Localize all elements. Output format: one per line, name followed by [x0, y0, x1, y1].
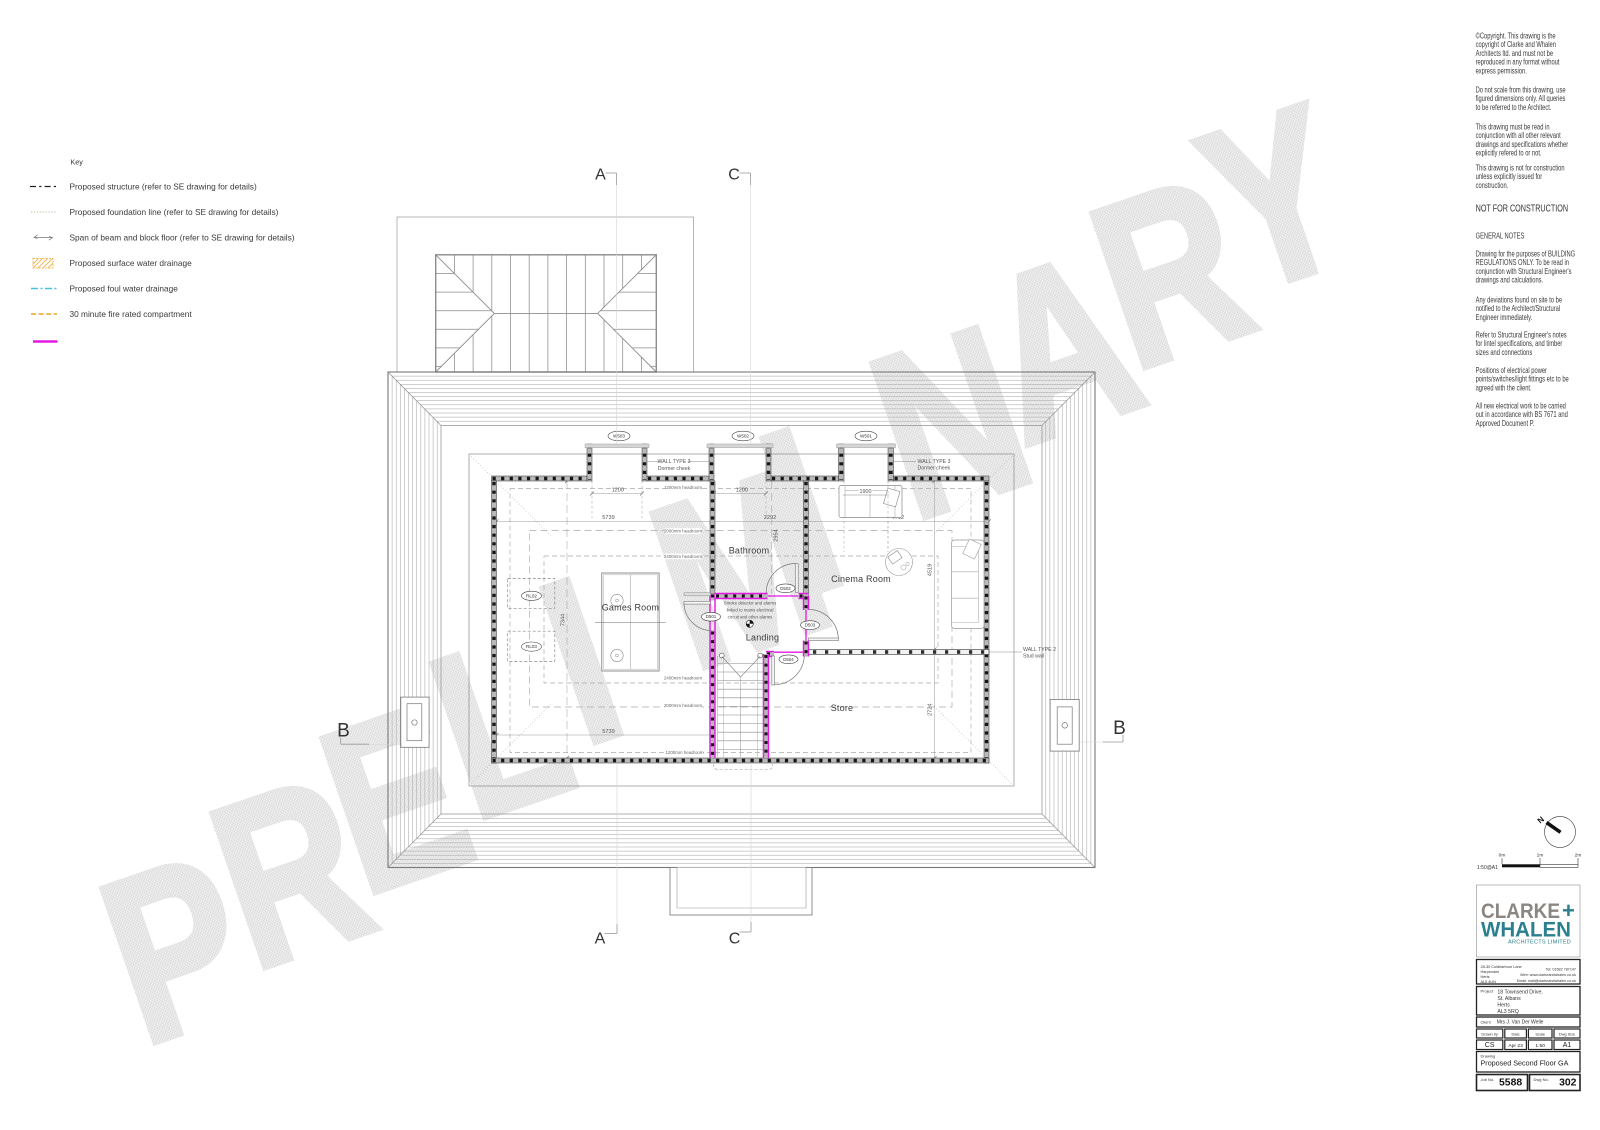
svg-text:Key: Key — [71, 158, 84, 167]
svg-text:Mrs J. Van Der Welle: Mrs J. Van Der Welle — [1497, 1020, 1544, 1026]
svg-text:REGULATIONS ONLY. To be read i: REGULATIONS ONLY. To be read in — [1476, 259, 1569, 267]
svg-text:Span of beam and block floor (: Span of beam and block floor (refer to S… — [70, 232, 295, 242]
svg-text:1200mm headroom: 1200mm headroom — [665, 750, 703, 755]
svg-text:30 minute fire rated compartme: 30 minute fire rated compartment — [70, 309, 193, 319]
svg-text:1200: 1200 — [736, 488, 748, 494]
svg-text:Date: Date — [1511, 1031, 1519, 1036]
svg-text:Architects ltd. and must not b: Architects ltd. and must not be — [1476, 50, 1554, 58]
svg-text:ARCHITECTS LIMITED: ARCHITECTS LIMITED — [1508, 940, 1571, 946]
svg-text:WALL TYPE 3: WALL TYPE 3 — [658, 459, 691, 465]
svg-text:28-30 Coldharbour Lane: 28-30 Coldharbour Lane — [1481, 965, 1522, 969]
svg-text:Landing: Landing — [746, 633, 779, 643]
svg-text:St. Albans: St. Albans — [1497, 996, 1521, 1002]
svg-text:D504: D504 — [783, 657, 794, 662]
svg-text:2400mm headroom: 2400mm headroom — [664, 554, 702, 559]
svg-text:express permission.: express permission. — [1476, 68, 1527, 76]
svg-text:1:50: 1:50 — [1535, 1043, 1545, 1049]
svg-text:Dwg Size: Dwg Size — [1559, 1031, 1575, 1036]
svg-text:W503: W503 — [613, 434, 625, 439]
svg-text:NOT FOR CONSTRUCTION: NOT FOR CONSTRUCTION — [1476, 202, 1569, 213]
svg-text:D503: D503 — [805, 623, 816, 628]
svg-text:notified to the Architect/Stru: notified to the Architect/Structural — [1476, 305, 1561, 313]
svg-text:Games Room: Games Room — [602, 603, 660, 613]
svg-text:Positions of electrical power: Positions of electrical power — [1476, 367, 1548, 375]
svg-text:1200: 1200 — [612, 488, 624, 494]
svg-text:Do not scale from this drawing: Do not scale from this drawing, use — [1476, 87, 1566, 95]
svg-text:Engineer immediately.: Engineer immediately. — [1476, 314, 1533, 322]
svg-text:2000mm headroom: 2000mm headroom — [664, 703, 702, 708]
svg-text:Dwg No.: Dwg No. — [1534, 1077, 1549, 1082]
svg-text:construction.: construction. — [1476, 182, 1509, 190]
svg-text:4519: 4519 — [928, 564, 934, 576]
svg-text:Scale: Scale — [1535, 1031, 1545, 1036]
svg-text:explicitly refered to or not.: explicitly refered to or not. — [1476, 150, 1542, 158]
svg-text:WALL TYPE 2: WALL TYPE 2 — [1023, 647, 1056, 653]
svg-text:Herts: Herts — [1497, 1003, 1510, 1009]
svg-text:D501: D501 — [706, 614, 717, 619]
svg-text:A: A — [595, 167, 606, 184]
svg-text:AL3 5RQ: AL3 5RQ — [1497, 1009, 1518, 1015]
svg-text:Cinema Room: Cinema Room — [831, 574, 891, 584]
svg-text:Dormer cheek: Dormer cheek — [658, 466, 691, 472]
svg-text:302: 302 — [1559, 1078, 1577, 1089]
svg-text:1m: 1m — [1537, 853, 1544, 859]
svg-text:Client: Client — [1481, 1020, 1492, 1025]
svg-text:for lintel specifications, and: for lintel specifications, and timber — [1476, 340, 1563, 348]
svg-text:Drawing for the purposes of BU: Drawing for the purposes of BUILDING — [1476, 251, 1576, 259]
svg-text:Project: Project — [1481, 989, 1494, 994]
svg-text:2292: 2292 — [764, 515, 776, 521]
svg-text:sizes and connections: sizes and connections — [1476, 349, 1533, 357]
svg-text:Store: Store — [831, 703, 854, 713]
svg-text:W502: W502 — [737, 434, 749, 439]
svg-text:WHALEN: WHALEN — [1481, 919, 1571, 942]
svg-text:AL5 4UN: AL5 4UN — [1481, 980, 1497, 984]
svg-text:Proposed surface water drainag: Proposed surface water drainage — [70, 258, 193, 268]
svg-text:points/switches/light fittings: points/switches/light fittings etc to be — [1476, 376, 1569, 384]
svg-text:conjunction with all other rel: conjunction with all other relevant — [1476, 132, 1561, 140]
svg-text:Herts: Herts — [1481, 975, 1490, 979]
svg-text:unless explicitly issued for: unless explicitly issued for — [1476, 173, 1543, 181]
svg-text:conjunction with Structural En: conjunction with Structural Engineer's — [1476, 268, 1572, 276]
svg-text:5588: 5588 — [1499, 1078, 1522, 1089]
svg-text:5739: 5739 — [602, 515, 614, 521]
svg-text:Refer to Structural Engineer's: Refer to Structural Engineer's notes — [1476, 332, 1568, 340]
svg-text:1900: 1900 — [860, 489, 872, 495]
svg-text:B: B — [337, 721, 350, 742]
svg-text:CS: CS — [1485, 1042, 1495, 1049]
svg-text:2400mm headroom: 2400mm headroom — [664, 676, 702, 681]
svg-text:Proposed foundation line (refe: Proposed foundation line (refer to SE dr… — [70, 207, 279, 217]
svg-text:Job No.: Job No. — [1481, 1077, 1495, 1082]
svg-text:A: A — [595, 931, 606, 948]
svg-text:A1: A1 — [1563, 1042, 1572, 1049]
svg-text:linked to mains electrical: linked to mains electrical — [727, 608, 774, 613]
svg-text:All new electrical work to be: All new electrical work to be carried — [1476, 403, 1566, 411]
svg-text:Drawn by: Drawn by — [1481, 1031, 1497, 1036]
svg-text:1200mm headroom: 1200mm headroom — [664, 485, 702, 490]
svg-text:reproduced in any format witho: reproduced in any format without — [1476, 59, 1560, 67]
svg-text:Apr 23: Apr 23 — [1508, 1043, 1523, 1049]
svg-text:C: C — [729, 931, 741, 948]
svg-text:This drawing is not for constr: This drawing is not for construction — [1476, 165, 1565, 173]
svg-text:Dormer cheek: Dormer cheek — [918, 466, 951, 472]
svg-text:out in accordance with BS 7671: out in accordance with BS 7671 and — [1476, 411, 1568, 419]
svg-text:C: C — [728, 167, 740, 184]
svg-text:Email: mail@clarkeandwhalen.co: Email: mail@clarkeandwhalen.co.uk — [1517, 979, 1576, 983]
svg-text:1:50@A1: 1:50@A1 — [1477, 865, 1498, 871]
svg-text:©Copyright. This drawing is th: ©Copyright. This drawing is the — [1476, 32, 1556, 41]
svg-text:agreed with the client.: agreed with the client. — [1476, 385, 1532, 393]
svg-text:WALL TYPE 3: WALL TYPE 3 — [918, 459, 951, 465]
svg-text:5739: 5739 — [602, 729, 614, 735]
svg-text:RL03: RL03 — [526, 644, 537, 649]
svg-text:W501: W501 — [860, 434, 872, 439]
svg-text:Proposed structure (refer to S: Proposed structure (refer to SE drawing … — [70, 181, 257, 191]
svg-text:B: B — [1113, 718, 1126, 739]
svg-text:0m: 0m — [1499, 853, 1506, 859]
svg-text:2954: 2954 — [774, 529, 780, 541]
svg-text:Any deviations found on site t: Any deviations found on site to be — [1476, 297, 1563, 305]
svg-text:drawings and calculations.: drawings and calculations. — [1476, 277, 1544, 285]
svg-text:Proposed foul water drainage: Proposed foul water drainage — [70, 283, 179, 293]
svg-text:Tel: 01582 787147: Tel: 01582 787147 — [1546, 968, 1576, 972]
svg-text:7344: 7344 — [561, 614, 567, 626]
svg-text:Smoke detector and alarms: Smoke detector and alarms — [724, 601, 777, 606]
svg-text:GENERAL NOTES: GENERAL NOTES — [1476, 233, 1525, 241]
svg-text:Stud wall: Stud wall — [1023, 653, 1044, 659]
svg-text:copyright of Clarke and Whalen: copyright of Clarke and Whalen — [1476, 41, 1556, 49]
svg-text:Bathroom: Bathroom — [729, 546, 770, 556]
svg-text:D502: D502 — [780, 586, 791, 591]
svg-text:2m: 2m — [1575, 853, 1582, 859]
svg-text:drawings and specifications wh: drawings and specifications whether — [1476, 141, 1569, 149]
svg-text:18 Townsend Drive,: 18 Townsend Drive, — [1497, 990, 1542, 996]
svg-text:figured dimensions only. All q: figured dimensions only. All queries — [1476, 95, 1566, 103]
svg-text:RL02: RL02 — [526, 593, 537, 598]
svg-text:to be referred to the Architec: to be referred to the Architect. — [1476, 104, 1552, 112]
svg-text:Harpenden: Harpenden — [1481, 970, 1500, 974]
svg-text:This drawing must be read in: This drawing must be read in — [1476, 124, 1550, 132]
svg-text:2000mm headroom: 2000mm headroom — [664, 529, 702, 534]
svg-text:2724: 2724 — [928, 703, 934, 715]
svg-text:Web: www.clarkeandwhalen.co.uk: Web: www.clarkeandwhalen.co.uk — [1520, 973, 1576, 977]
svg-text:Proposed Second Floor GA: Proposed Second Floor GA — [1481, 1059, 1569, 1068]
svg-text:circuit and other alarms: circuit and other alarms — [728, 615, 773, 620]
svg-text:Approved Document P.: Approved Document P. — [1476, 420, 1535, 428]
